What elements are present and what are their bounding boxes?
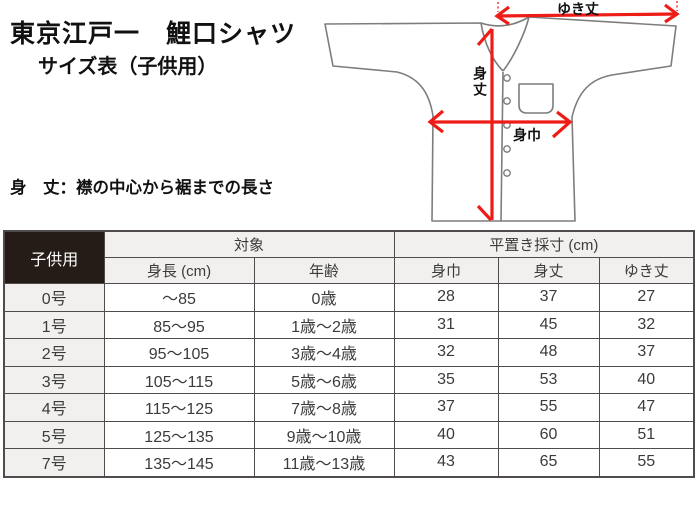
cell-body-length: 37 bbox=[498, 284, 599, 312]
col-header-height: 身長 (cm) bbox=[104, 258, 254, 284]
cell-age-range: 9歳～10歳 bbox=[254, 421, 394, 449]
col-header-body-width: 身巾 bbox=[394, 258, 498, 284]
shirt-drawing bbox=[300, 0, 700, 230]
button-icon bbox=[504, 170, 510, 176]
cell-sleeve-length: 40 bbox=[599, 366, 694, 394]
page-subtitle: サイズ表（子供用） bbox=[38, 50, 217, 79]
cell-body-length: 65 bbox=[498, 449, 599, 477]
table-row: 5号 125～135 9歳～10歳 40 60 51 bbox=[4, 421, 694, 449]
cell-size-label: 3号 bbox=[4, 366, 104, 394]
table-row: 7号 135～145 11歳～13歳 43 65 55 bbox=[4, 449, 694, 477]
cell-body-length: 60 bbox=[498, 421, 599, 449]
cell-height-range: 125～135 bbox=[104, 421, 254, 449]
cell-age-range: 3歳～4歳 bbox=[254, 339, 394, 367]
button-icon bbox=[504, 98, 510, 104]
cell-body-length: 53 bbox=[498, 366, 599, 394]
cell-size-label: 7号 bbox=[4, 449, 104, 477]
sleeve-length-label: ゆき丈 bbox=[557, 0, 599, 19]
cell-height-range: 135～145 bbox=[104, 449, 254, 477]
koikuchi-shirt-diagram: ゆき丈 身丈 身巾 bbox=[300, 0, 700, 230]
table-row: 2号 95～105 3歳～4歳 32 48 37 bbox=[4, 339, 694, 367]
col-header-body-length: 身丈 bbox=[498, 258, 599, 284]
body-width-label: 身巾 bbox=[513, 125, 541, 145]
cell-body-width: 43 bbox=[394, 449, 498, 477]
cell-body-length: 45 bbox=[498, 311, 599, 339]
group-header-flat-measure: 平置き採寸 (cm) bbox=[394, 231, 694, 258]
cell-sleeve-length: 47 bbox=[599, 394, 694, 422]
cell-age-range: 7歳～8歳 bbox=[254, 394, 394, 422]
cell-sleeve-length: 37 bbox=[599, 339, 694, 367]
cell-age-range: 5歳～6歳 bbox=[254, 366, 394, 394]
cell-size-label: 4号 bbox=[4, 394, 104, 422]
header-column-row: 身長 (cm) 年齢 身巾 身丈 ゆき丈 bbox=[4, 258, 694, 284]
button-icon bbox=[504, 146, 510, 152]
table-row: 4号 115～125 7歳～8歳 37 55 47 bbox=[4, 394, 694, 422]
cell-sleeve-length: 51 bbox=[599, 421, 694, 449]
cell-body-length: 48 bbox=[498, 339, 599, 367]
cell-sleeve-length: 55 bbox=[599, 449, 694, 477]
button-icon bbox=[504, 75, 510, 81]
cell-body-width: 28 bbox=[394, 284, 498, 312]
cell-height-range: 95～105 bbox=[104, 339, 254, 367]
corner-header-kids: 子供用 bbox=[4, 231, 104, 284]
cell-body-length: 55 bbox=[498, 394, 599, 422]
cell-age-range: 1歳～2歳 bbox=[254, 311, 394, 339]
header-group-row: 子供用 対象 平置き採寸 (cm) bbox=[4, 231, 694, 258]
body-length-label: 身丈 bbox=[470, 66, 490, 98]
cell-body-width: 37 bbox=[394, 394, 498, 422]
table-row: 0号 ～85 0歳 28 37 27 bbox=[4, 284, 694, 312]
cell-height-range: 115～125 bbox=[104, 394, 254, 422]
shirt-outline bbox=[325, 17, 676, 221]
cell-body-width: 32 bbox=[394, 339, 498, 367]
col-header-sleeve: ゆき丈 bbox=[599, 258, 694, 284]
size-table: 子供用 対象 平置き採寸 (cm) 身長 (cm) 年齢 身巾 身丈 ゆき丈 0… bbox=[3, 230, 695, 478]
cell-height-range: ～85 bbox=[104, 284, 254, 312]
col-header-age: 年齢 bbox=[254, 258, 394, 284]
cell-size-label: 5号 bbox=[4, 421, 104, 449]
cell-height-range: 85～95 bbox=[104, 311, 254, 339]
page-title: 東京江戸一 鯉口シャツ bbox=[10, 14, 296, 50]
cell-height-range: 105～115 bbox=[104, 366, 254, 394]
cell-size-label: 0号 bbox=[4, 284, 104, 312]
group-header-target: 対象 bbox=[104, 231, 394, 258]
cell-size-label: 1号 bbox=[4, 311, 104, 339]
table-row: 1号 85～95 1歳～2歳 31 45 32 bbox=[4, 311, 694, 339]
cell-age-range: 0歳 bbox=[254, 284, 394, 312]
cell-body-width: 31 bbox=[394, 311, 498, 339]
cell-body-width: 35 bbox=[394, 366, 498, 394]
cell-age-range: 11歳～13歳 bbox=[254, 449, 394, 477]
table-row: 3号 105～115 5歳～6歳 35 53 40 bbox=[4, 366, 694, 394]
cell-size-label: 2号 bbox=[4, 339, 104, 367]
cell-sleeve-length: 27 bbox=[599, 284, 694, 312]
cell-sleeve-length: 32 bbox=[599, 311, 694, 339]
cell-body-width: 40 bbox=[394, 421, 498, 449]
